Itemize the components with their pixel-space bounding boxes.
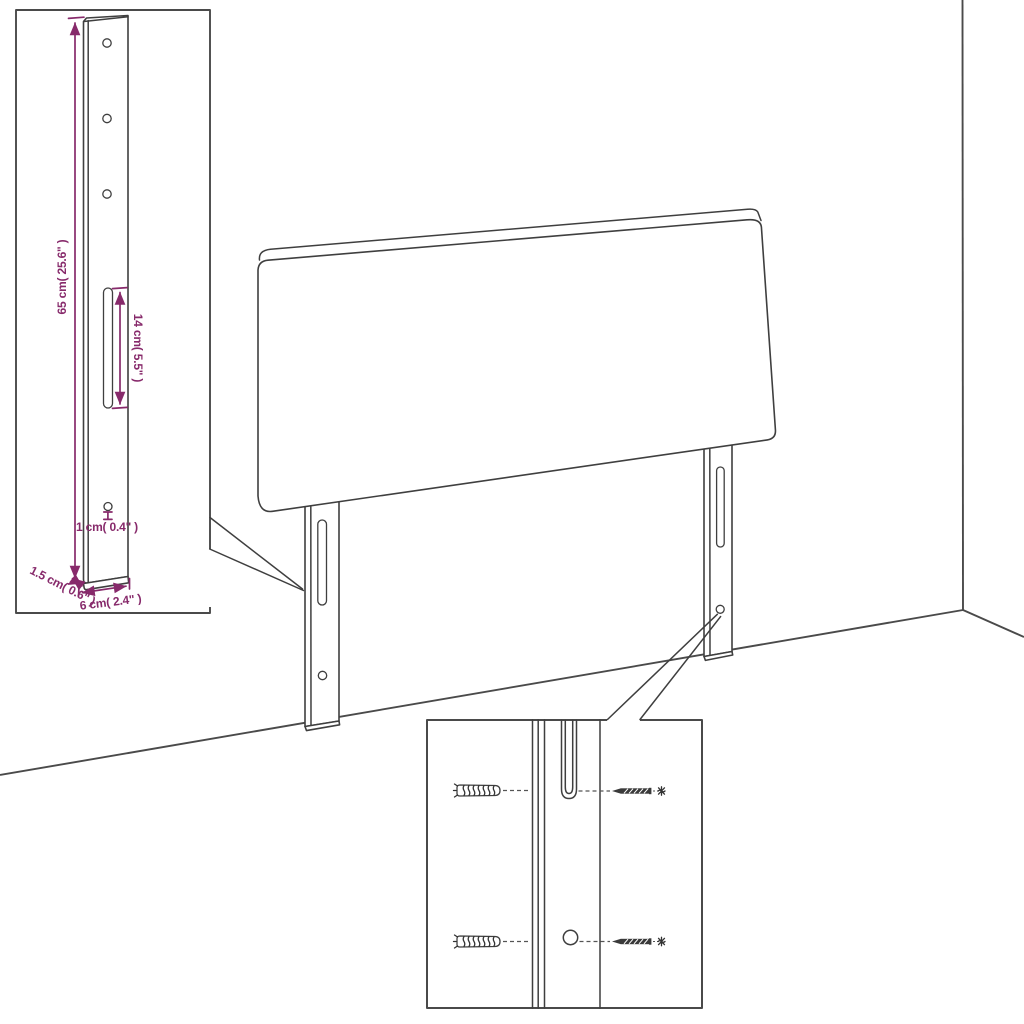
- floor-line-right: [963, 610, 1024, 637]
- dimension-65cm-label: 65 cm( 25.6" ): [55, 239, 69, 314]
- dimension-14cm-label: 14 cm( 5.5" ): [131, 314, 145, 383]
- callout-line: [210, 549, 304, 591]
- bracket-small-hole: [104, 503, 112, 511]
- callout-line: [608, 614, 718, 719]
- left-leg-slot: [318, 520, 327, 605]
- right-leg-slot: [717, 467, 725, 547]
- diagram-canvas: 65 cm( 25.6" ) 14 cm( 5.5" ) 1 cm( 0.4" …: [0, 0, 1024, 1024]
- bracket-hole-2: [103, 114, 111, 122]
- wall-corner-vertical-line: [963, 0, 964, 610]
- headboard-diagram: 65 cm( 25.6" ) 14 cm( 5.5" ) 1 cm( 0.4" …: [0, 0, 1024, 1024]
- headboard-panel: [258, 209, 775, 511]
- bracket-hole-3: [103, 190, 111, 198]
- hardware-detail-inset-border: [427, 720, 702, 1008]
- hardware-detail-inset: [427, 720, 702, 1008]
- right-leg-screw-hole: [716, 605, 724, 613]
- callout-line: [640, 617, 721, 720]
- headboard-right-leg: [704, 435, 733, 661]
- dimension-1cm-label: 1 cm( 0.4" ): [76, 520, 138, 534]
- left-leg-screw-hole: [318, 671, 326, 679]
- leg-detail-callout-lines: [210, 518, 304, 591]
- bracket-drawing: [84, 16, 129, 590]
- wall-plug-anchor-icon: [454, 784, 501, 797]
- leg-detail-inset: 65 cm( 25.6" ) 14 cm( 5.5" ) 1 cm( 0.4" …: [16, 10, 210, 613]
- headboard-front-face: [258, 220, 775, 512]
- bracket-slot: [104, 288, 113, 408]
- bracket-hole-1: [103, 39, 111, 47]
- headboard-left-leg: [305, 491, 340, 731]
- wall-plug-anchor-icon: [454, 935, 501, 948]
- callout-line: [210, 518, 303, 590]
